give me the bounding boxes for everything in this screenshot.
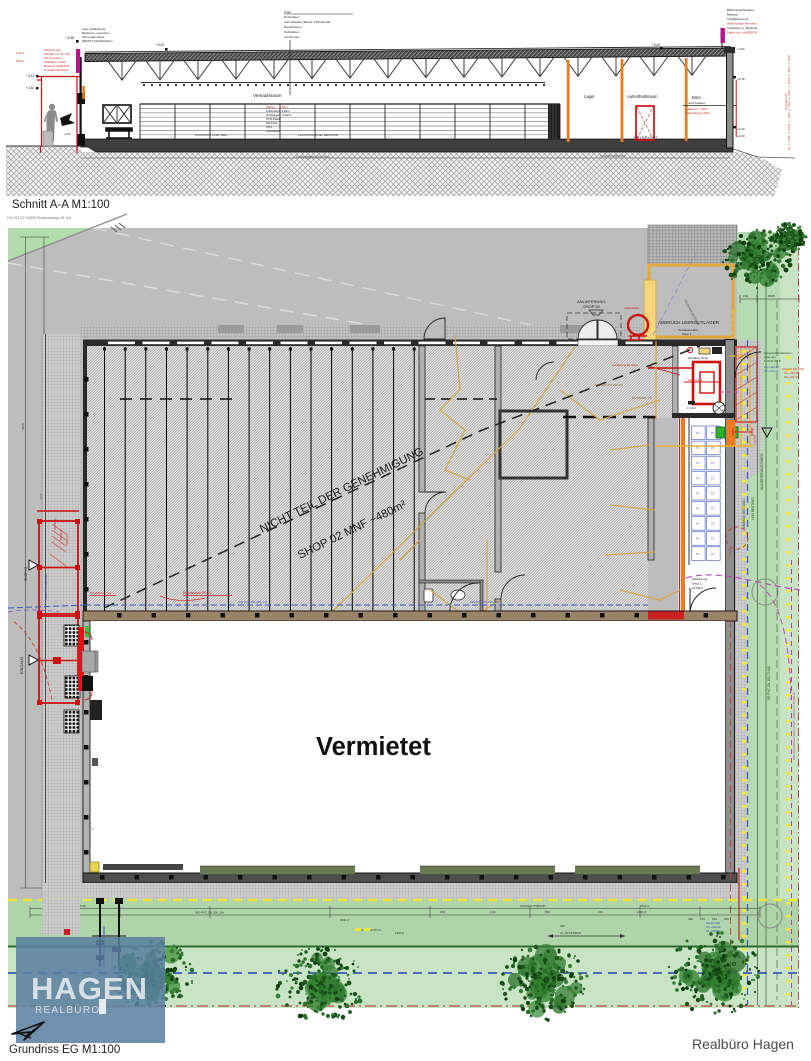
svg-text:RWA neu: RWA neu: [65, 533, 69, 545]
svg-text:+5,38: +5,38: [66, 36, 74, 40]
svg-text:8,00m: 8,00m: [16, 59, 25, 63]
svg-text:PC: PC: [711, 537, 715, 541]
svg-text:1,50: 1,50: [490, 910, 496, 914]
svg-text:schalldämmend: schalldämmend: [727, 17, 748, 21]
svg-text:Grundriss EG M1:100: Grundriss EG M1:100: [9, 1044, 120, 1056]
svg-text:KZ +420,67: KZ +420,67: [706, 929, 721, 933]
svg-text:PC: PC: [696, 522, 700, 526]
svg-text:1,00m: 1,00m: [16, 51, 25, 55]
svg-text:F 1,2m²: F 1,2m²: [687, 406, 696, 410]
svg-text:PC: PC: [696, 431, 700, 435]
svg-text:TANKBOX BESTAND: TANKBOX BESTAND: [742, 499, 746, 530]
svg-text:Vermietet: Vermietet: [316, 733, 431, 761]
svg-text:PC: PC: [711, 522, 715, 526]
svg-text:+3,32: +3,32: [26, 86, 34, 90]
svg-text:Vordächer, F., Bestand: Vordächer, F., Bestand: [727, 26, 758, 30]
svg-text:3045: 3045: [768, 294, 775, 298]
svg-text:SHOP 02: SHOP 02: [24, 567, 28, 581]
svg-text:LKW BESTAND: LKW BESTAND: [751, 497, 755, 520]
svg-text:Aufstellplatz: Aufstellplatz: [624, 306, 640, 310]
svg-text:ANLIEFERUNGSWEG: ANLIEFERUNGSWEG: [760, 453, 764, 490]
svg-text:2862,6: 2862,6: [640, 904, 650, 908]
svg-text:GL ÖFFENBAR: GL ÖFFENBAR: [360, 928, 382, 932]
svg-text:550: 550: [545, 910, 550, 914]
svg-text:Lager: Lager: [584, 94, 595, 99]
svg-text:636: 636: [560, 924, 565, 928]
svg-text:Fuge: Fuge: [284, 10, 291, 14]
svg-text:1906,6: 1906,6: [395, 931, 405, 935]
svg-text:2491,6: 2491,6: [637, 910, 647, 914]
svg-text:+0,00: +0,00: [737, 47, 745, 51]
svg-text:PC: PC: [696, 476, 700, 480]
svg-text:+0,05: +0,05: [64, 132, 71, 136]
svg-text:950 PVC DN 200, 2%: 950 PVC DN 200, 2%: [195, 911, 224, 915]
svg-text:334: 334: [598, 910, 603, 914]
svg-text:KZ +421,17: KZ +421,17: [784, 375, 799, 379]
svg-text:R 5,50: R 5,50: [728, 547, 732, 556]
svg-text:Shop 1: Shop 1: [692, 582, 702, 586]
svg-text:(BH/ST) 192/194/19cm: (BH/ST) 192/194/19cm: [82, 39, 113, 43]
svg-text:Grundgrenze: Grundgrenze: [784, 93, 788, 110]
svg-text:±0,00 FFOK Puffer NEU: ±0,00 FFOK Puffer NEU: [195, 133, 227, 137]
svg-text:PC: PC: [711, 476, 715, 480]
svg-text:PC: PC: [711, 431, 715, 435]
svg-text:Shop 1: Shop 1: [682, 332, 692, 336]
svg-text:130/207: 130/207: [753, 434, 757, 445]
svg-text:PC: PC: [696, 552, 700, 556]
svg-text:KZ +421,27: KZ +421,27: [764, 369, 779, 373]
svg-text:159: 159: [743, 294, 748, 298]
svg-text:Alu Rinnen: Alu Rinnen: [284, 35, 299, 39]
svg-text:Realbüro Hagen: Realbüro Hagen: [692, 1036, 794, 1052]
svg-text:BIPA Hinterfassaden: BIPA Hinterfassaden: [727, 8, 755, 12]
svg-text:ABBRUCH LEERGUTLAGER: ABBRUCH LEERGUTLAGER: [658, 320, 720, 325]
svg-text:Schnitt A-A M1:100: Schnitt A-A M1:100: [12, 199, 110, 211]
svg-text:SW PVC DN 150, 2%: SW PVC DN 150, 2%: [470, 600, 499, 604]
svg-text:HAGEN: HAGEN: [31, 971, 148, 1006]
svg-text:Hauptfundamente: Hauptfundamente: [600, 154, 626, 158]
svg-text:Wärmeplatte erneuern: Wärmeplatte erneuern: [727, 22, 757, 26]
svg-text:Aufenthaltsraum: Aufenthaltsraum: [627, 94, 658, 99]
svg-text:Windfang: Windfang: [53, 518, 57, 530]
svg-text:BMA lt. Brandkonzept: BMA lt. Brandkonzept: [44, 573, 48, 600]
svg-text:Lehmständer dämmf. Füllmateria: Lehmständer dämmf. Füllmaterial: [284, 20, 330, 24]
svg-text:SW PVC DN 150 1%: SW PVC DN 150 1%: [595, 383, 623, 387]
svg-text:PC: PC: [711, 491, 715, 495]
svg-text:EINGANG: EINGANG: [20, 656, 24, 674]
svg-text:260: 260: [724, 917, 729, 921]
svg-text:+0,00: +0,00: [737, 134, 745, 138]
svg-text:GW PVC DN 150, 1%: GW PVC DN 150, 1%: [238, 600, 268, 604]
svg-text:Aufzählung Rg Shop: Aufzählung Rg Shop: [612, 363, 638, 367]
svg-text:GEWÄCHTSBAND: GEWÄCHTSBAND: [520, 904, 547, 908]
svg-text:Durchbruch neu: Durchbruch neu: [90, 591, 112, 595]
svg-text:+0,05 FFOK Puffer BESTAND: +0,05 FFOK Puffer BESTAND: [298, 133, 339, 137]
svg-text:150: 150: [440, 910, 445, 914]
svg-text:lt. Statik Nachweis: lt. Statik Nachweis: [44, 68, 69, 72]
svg-text:PC: PC: [696, 507, 700, 511]
svg-text:0,00 + 0,40 + 2,42 h: 0,00 + 0,40 + 2,42 h: [634, 135, 658, 139]
svg-text:+0,00: +0,00: [652, 43, 660, 47]
svg-text:PC: PC: [711, 552, 715, 556]
svg-text:+3,15: +3,15: [737, 77, 745, 81]
svg-text:3005: 3005: [21, 423, 25, 430]
svg-text:2491,6: 2491,6: [340, 918, 350, 922]
svg-text:Bestand: Bestand: [59, 529, 63, 540]
svg-text:Farbe neu: MAGENTA: Farbe neu: MAGENTA: [727, 31, 757, 35]
svg-text:430: 430: [688, 917, 693, 921]
svg-text:SR PVC DN 150, FUND: SR PVC DN 150, FUND: [767, 665, 771, 700]
svg-text:Getränke Shop: Getränke Shop: [688, 356, 709, 360]
svg-text:Brandschutz RS 90: Brandschutz RS 90: [183, 591, 211, 595]
svg-text:Fundplatte: Fundplatte: [266, 129, 281, 133]
svg-text:GL ÖFFENBAR: GL ÖFFENBAR: [560, 931, 582, 935]
svg-text:ENTWURF 2%: ENTWURF 2%: [632, 396, 652, 400]
svg-text:+0,10: +0,10: [737, 127, 745, 131]
svg-text:Anlieferung: Anlieferung: [692, 577, 708, 581]
svg-text:Sauberkeitsschicht 5cm: Sauberkeitsschicht 5cm: [296, 155, 330, 159]
svg-text:150: 150: [700, 917, 705, 921]
svg-text:TUS IN ÖN B: TUS IN ÖN B: [764, 359, 781, 363]
svg-text:Abweichung 2,60m: Abweichung 2,60m: [686, 111, 710, 115]
svg-text:Flur 321 EZ 49/808 Straßenan: Flur 321 EZ 49/808 Straßenanlage öff. Gu…: [7, 216, 71, 220]
svg-text:PC: PC: [711, 461, 715, 465]
svg-text:Holzplatten: Holzplatten: [284, 30, 300, 34]
svg-text:+3,41: +3,41: [26, 74, 34, 78]
svg-text:Holzplatten: Holzplatten: [284, 15, 300, 19]
svg-text:Verkaufsraum: Verkaufsraum: [253, 93, 282, 98]
svg-text:Dampfsperre: Dampfsperre: [284, 25, 302, 29]
svg-text:Büro: Büro: [692, 95, 702, 100]
svg-text:SHOP 02: SHOP 02: [583, 304, 601, 309]
svg-text:T.: T.: [92, 827, 95, 831]
svg-text:Getränkeaut.: Getränkeaut.: [688, 378, 703, 382]
svg-text:nicht bestand: nicht bestand: [688, 101, 705, 105]
svg-text:PC: PC: [696, 537, 700, 541]
svg-text:WB SICHERHEITSNETZ MIT UMBAULF: WB SICHERHEITSNETZ MIT UMBAULF IN BAHN: [792, 692, 796, 760]
svg-text:Bestand: Bestand: [727, 13, 738, 17]
svg-text:REALBÜRO: REALBÜRO: [35, 1004, 100, 1016]
svg-text:+0,00: +0,00: [156, 43, 164, 47]
svg-text:PC: PC: [711, 507, 715, 511]
svg-text:PC: PC: [696, 491, 700, 495]
svg-text:24,00m²: 24,00m²: [692, 586, 703, 590]
svg-text:PC: PC: [696, 461, 700, 465]
